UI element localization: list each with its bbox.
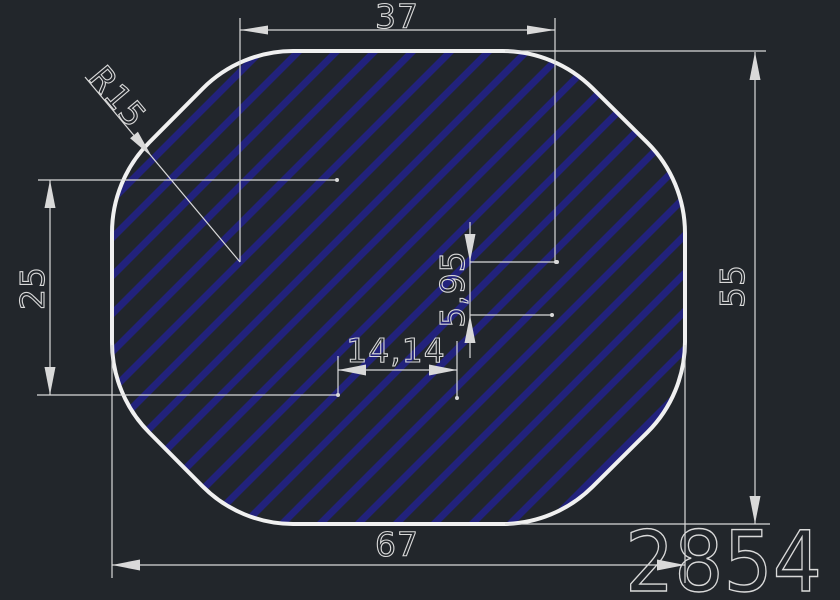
dimension-label: 55 <box>713 264 752 308</box>
dimension-label: 25 <box>13 266 52 310</box>
cad-drawing-canvas: 37 R15 25 5,95 14,14 <box>0 0 840 600</box>
part-number-label: 2854 <box>625 513 822 600</box>
reference-dot <box>335 178 339 182</box>
dimension-label: 67 <box>375 525 419 564</box>
dimension-label: 5,95 <box>433 250 472 327</box>
reference-dot <box>550 313 554 317</box>
reference-dot <box>555 260 559 264</box>
dimension-label: 37 <box>375 0 419 36</box>
dimension-label: 14,14 <box>346 331 445 370</box>
reference-dot <box>455 396 459 400</box>
